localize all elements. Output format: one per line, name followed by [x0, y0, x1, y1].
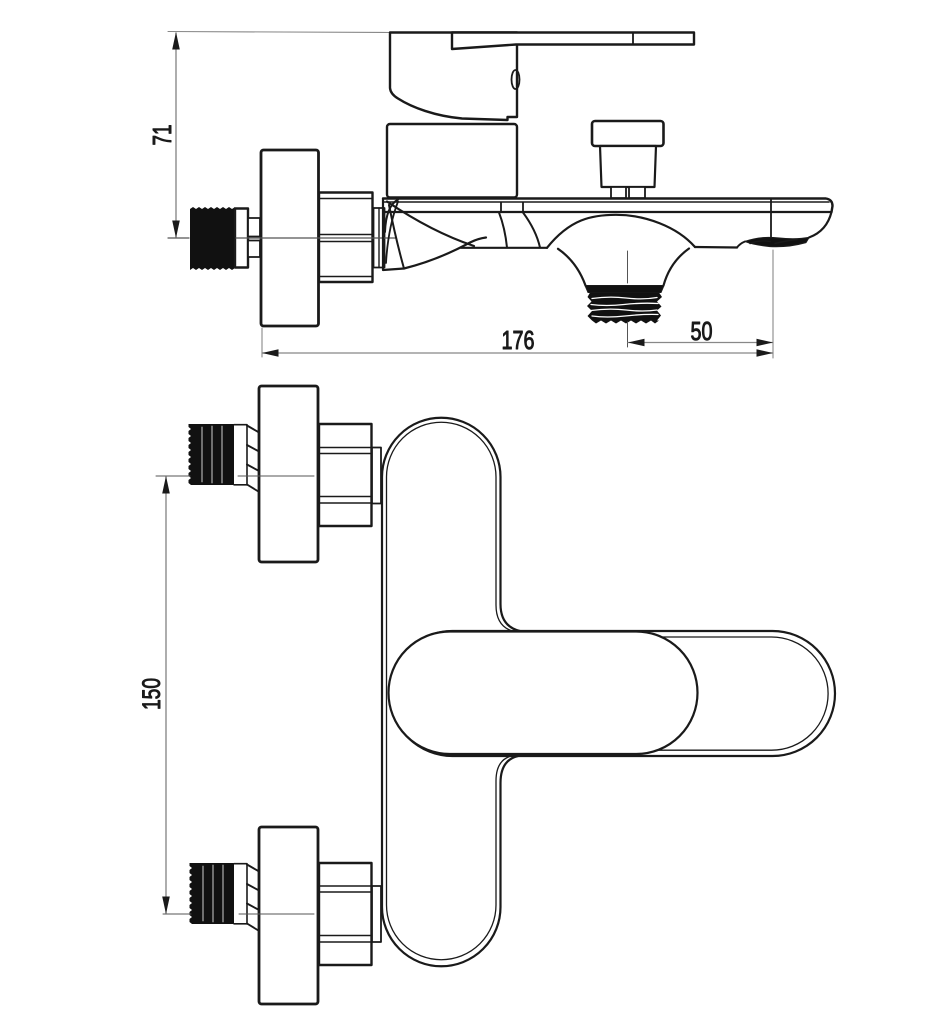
svg-text:71: 71	[149, 125, 177, 146]
svg-text:50: 50	[691, 316, 713, 346]
svg-text:176: 176	[502, 325, 535, 355]
svg-text:150: 150	[138, 678, 166, 710]
